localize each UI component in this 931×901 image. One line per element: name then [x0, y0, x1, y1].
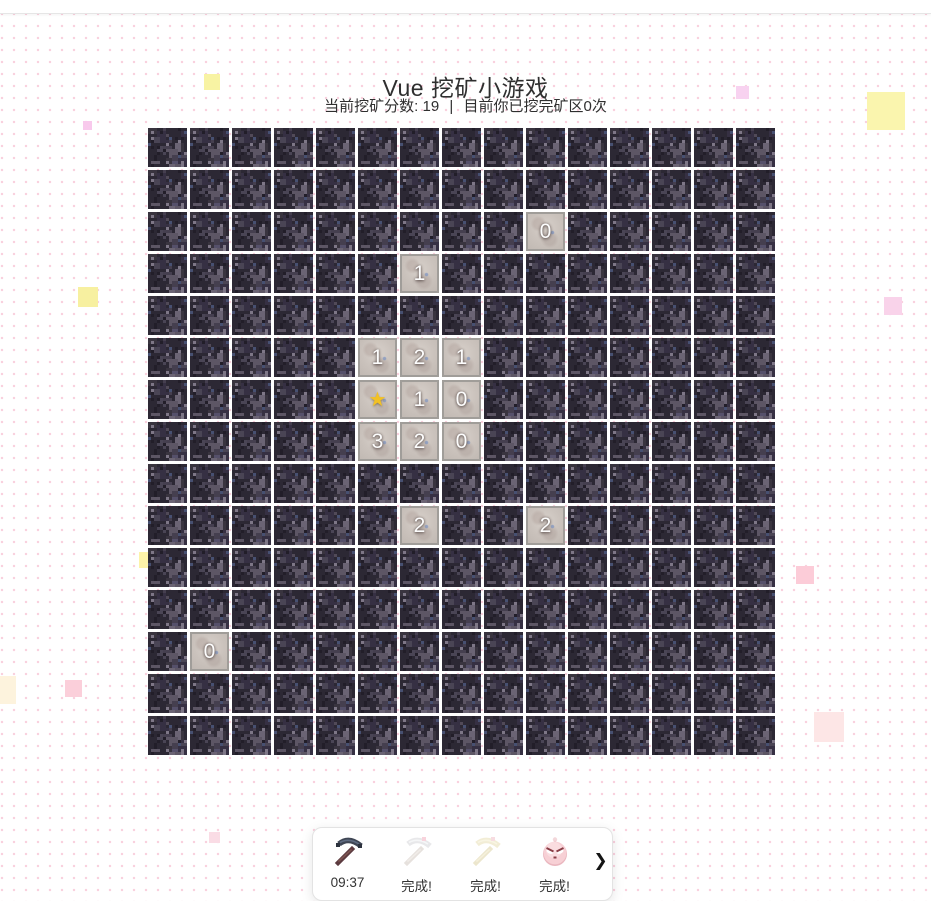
bedrock-tile-texture — [232, 254, 271, 293]
mine-cell[interactable] — [694, 296, 733, 335]
mine-cell[interactable] — [568, 590, 607, 629]
mine-cell[interactable] — [694, 632, 733, 671]
mine-cell[interactable] — [232, 632, 271, 671]
mine-cell[interactable] — [274, 506, 313, 545]
bedrock-tile-texture — [736, 380, 775, 419]
mine-cell[interactable] — [610, 506, 649, 545]
mine-cell[interactable] — [400, 170, 439, 209]
adjacent-count: 2 — [540, 515, 552, 536]
mine-cell[interactable] — [484, 212, 523, 251]
bedrock-tile-texture — [652, 128, 691, 167]
mine-cell[interactable] — [442, 464, 481, 503]
mine-cell[interactable] — [232, 380, 271, 419]
mine-cell[interactable] — [190, 212, 229, 251]
mine-cell[interactable] — [358, 674, 397, 713]
mine-cell[interactable] — [694, 212, 733, 251]
mine-cell[interactable] — [442, 632, 481, 671]
mine-cell[interactable] — [484, 422, 523, 461]
bedrock-tile-texture — [232, 422, 271, 461]
gold-pickaxe-icon — [470, 835, 502, 872]
bedrock-tile-texture — [316, 590, 355, 629]
mine-cell[interactable] — [442, 296, 481, 335]
mine-cell[interactable] — [316, 506, 355, 545]
mine-cell[interactable] — [400, 548, 439, 587]
mine-cell[interactable] — [274, 590, 313, 629]
adjacent-count: 2 — [414, 431, 426, 452]
mine-cell-revealed: 3 — [358, 422, 397, 461]
mine-cell[interactable] — [400, 590, 439, 629]
mine-cell[interactable] — [358, 254, 397, 293]
bedrock-tile-texture — [190, 464, 229, 503]
mine-cell[interactable] — [652, 632, 691, 671]
bedrock-tile-texture — [652, 254, 691, 293]
tool-slot-2[interactable]: 完成! — [382, 828, 451, 900]
mine-cell[interactable] — [442, 212, 481, 251]
mine-cell[interactable] — [190, 296, 229, 335]
pink-orb-icon — [539, 835, 571, 872]
mine-cell[interactable] — [736, 464, 775, 503]
bedrock-tile-texture — [568, 674, 607, 713]
bedrock-tile-texture — [232, 338, 271, 377]
mine-cell[interactable] — [484, 338, 523, 377]
mine-cell[interactable] — [358, 548, 397, 587]
mine-cell[interactable] — [400, 296, 439, 335]
mine-cell[interactable] — [400, 716, 439, 755]
mine-cell[interactable] — [526, 338, 565, 377]
mine-cell[interactable] — [274, 254, 313, 293]
mine-cell[interactable] — [400, 464, 439, 503]
mine-cell[interactable] — [274, 338, 313, 377]
mine-cell[interactable] — [484, 170, 523, 209]
mine-cell-revealed: 1 — [400, 254, 439, 293]
mine-cell[interactable] — [526, 422, 565, 461]
bedrock-tile-texture — [442, 128, 481, 167]
mine-cell[interactable] — [232, 674, 271, 713]
mine-cell[interactable] — [568, 212, 607, 251]
mine-cell[interactable] — [232, 506, 271, 545]
bedrock-tile-texture — [610, 380, 649, 419]
mine-cell[interactable] — [484, 380, 523, 419]
mine-cell[interactable] — [736, 548, 775, 587]
mine-cell[interactable] — [568, 338, 607, 377]
mine-cell[interactable] — [232, 296, 271, 335]
mine-cell[interactable] — [652, 464, 691, 503]
mine-cell[interactable] — [694, 716, 733, 755]
mine-cell[interactable] — [148, 506, 187, 545]
mine-cell[interactable] — [316, 632, 355, 671]
mine-cell[interactable] — [190, 464, 229, 503]
mine-cell[interactable] — [316, 254, 355, 293]
mine-cell[interactable] — [484, 632, 523, 671]
mine-cell[interactable] — [484, 464, 523, 503]
mine-cell[interactable] — [652, 590, 691, 629]
bedrock-tile-texture — [400, 170, 439, 209]
mine-cell[interactable] — [232, 170, 271, 209]
mine-cell[interactable] — [232, 464, 271, 503]
mine-cell[interactable] — [442, 548, 481, 587]
mine-cell[interactable] — [736, 380, 775, 419]
mine-cell[interactable] — [652, 548, 691, 587]
mine-cell[interactable] — [190, 590, 229, 629]
mine-cell[interactable] — [610, 254, 649, 293]
mine-cell[interactable] — [736, 632, 775, 671]
bedrock-tile-texture — [610, 170, 649, 209]
mine-cell[interactable] — [232, 128, 271, 167]
mine-cell[interactable] — [148, 338, 187, 377]
bedrock-tile-texture — [232, 128, 271, 167]
mine-cell[interactable] — [148, 296, 187, 335]
mine-cell[interactable] — [358, 590, 397, 629]
mine-cell[interactable] — [694, 464, 733, 503]
mine-cell[interactable] — [568, 296, 607, 335]
mine-cell[interactable] — [400, 632, 439, 671]
mine-cell[interactable] — [316, 170, 355, 209]
mine-cell[interactable] — [316, 296, 355, 335]
bedrock-tile-texture — [190, 422, 229, 461]
mine-cell[interactable] — [694, 170, 733, 209]
mine-cell[interactable] — [736, 674, 775, 713]
bedrock-tile-texture — [358, 128, 397, 167]
mine-cell[interactable] — [652, 716, 691, 755]
mine-cell[interactable] — [274, 212, 313, 251]
mine-cell[interactable] — [568, 548, 607, 587]
mine-cell[interactable] — [694, 674, 733, 713]
bedrock-tile-texture — [274, 212, 313, 251]
bedrock-tile-texture — [652, 296, 691, 335]
mine-cell[interactable] — [316, 674, 355, 713]
mine-cell[interactable] — [316, 212, 355, 251]
mine-cell[interactable] — [190, 254, 229, 293]
adjacent-count: 2 — [414, 347, 426, 368]
mine-cell[interactable] — [442, 506, 481, 545]
tool-slot-3[interactable]: 完成! — [451, 828, 520, 900]
mine-cell[interactable] — [736, 506, 775, 545]
mine-cell[interactable] — [568, 464, 607, 503]
bedrock-tile-texture — [484, 716, 523, 755]
bedrock-tile-texture — [526, 296, 565, 335]
mine-cell[interactable] — [736, 128, 775, 167]
mine-cell[interactable] — [694, 506, 733, 545]
mine-cell[interactable] — [442, 254, 481, 293]
mine-cell[interactable] — [484, 548, 523, 587]
mine-cell[interactable] — [484, 590, 523, 629]
bedrock-tile-texture — [442, 296, 481, 335]
mine-cell[interactable] — [358, 296, 397, 335]
mine-cell[interactable] — [232, 212, 271, 251]
mine-cell[interactable] — [400, 212, 439, 251]
mine-cell[interactable] — [568, 716, 607, 755]
bedrock-tile-texture — [484, 590, 523, 629]
bedrock-tile-texture — [736, 170, 775, 209]
mine-cell[interactable] — [148, 716, 187, 755]
bedrock-tile-texture — [190, 716, 229, 755]
mine-cell[interactable] — [484, 296, 523, 335]
mine-cell[interactable] — [652, 338, 691, 377]
mine-cell[interactable] — [316, 464, 355, 503]
mine-cell[interactable] — [652, 506, 691, 545]
mine-cell[interactable] — [232, 422, 271, 461]
status-divider: | — [449, 98, 453, 115]
mine-cell[interactable] — [568, 128, 607, 167]
mine-cell[interactable] — [610, 590, 649, 629]
bedrock-tile-texture — [736, 506, 775, 545]
mine-cell[interactable] — [568, 422, 607, 461]
adjacent-count: 1 — [414, 263, 426, 284]
mine-cell[interactable] — [148, 212, 187, 251]
mine-cell[interactable] — [148, 548, 187, 587]
mine-cell[interactable] — [358, 464, 397, 503]
mine-cell[interactable] — [148, 464, 187, 503]
mine-cell[interactable] — [568, 254, 607, 293]
mine-cell[interactable] — [316, 380, 355, 419]
mine-cell[interactable] — [568, 632, 607, 671]
mine-cell[interactable] — [148, 254, 187, 293]
bedrock-tile-texture — [484, 422, 523, 461]
bedrock-tile-texture — [568, 716, 607, 755]
mine-cell[interactable] — [610, 548, 649, 587]
mine-cell[interactable] — [274, 380, 313, 419]
mine-cell[interactable] — [442, 674, 481, 713]
mine-cell[interactable] — [694, 422, 733, 461]
netherite-pickaxe-icon — [332, 835, 364, 872]
mine-cell[interactable] — [190, 338, 229, 377]
mine-cell[interactable] — [274, 464, 313, 503]
mine-cell[interactable] — [610, 128, 649, 167]
mine-cell[interactable] — [148, 590, 187, 629]
mine-cell-revealed: 2 — [526, 506, 565, 545]
mine-cell[interactable] — [568, 506, 607, 545]
bedrock-tile-texture — [232, 674, 271, 713]
mine-cell[interactable] — [736, 422, 775, 461]
mine-cell[interactable] — [526, 128, 565, 167]
chevron-right-icon[interactable]: ❯ — [589, 828, 612, 900]
mine-cell[interactable] — [442, 170, 481, 209]
bedrock-tile-texture — [148, 464, 187, 503]
mine-cell[interactable] — [358, 170, 397, 209]
mine-cell[interactable] — [694, 590, 733, 629]
mine-cell[interactable] — [274, 548, 313, 587]
bedrock-tile-texture — [316, 212, 355, 251]
bedrock-tile-texture — [316, 674, 355, 713]
mine-cell[interactable] — [652, 674, 691, 713]
mine-cell[interactable] — [400, 128, 439, 167]
mine-cell[interactable] — [526, 380, 565, 419]
mine-cell[interactable] — [652, 170, 691, 209]
mine-cell[interactable] — [610, 464, 649, 503]
mine-cell[interactable] — [232, 590, 271, 629]
mine-cell[interactable] — [274, 674, 313, 713]
bedrock-tile-texture — [526, 590, 565, 629]
bedrock-tile-texture — [274, 506, 313, 545]
mine-cell[interactable] — [442, 128, 481, 167]
mine-cell[interactable] — [694, 128, 733, 167]
mine-cell[interactable] — [484, 506, 523, 545]
mine-cell[interactable] — [190, 674, 229, 713]
mine-cell[interactable] — [358, 212, 397, 251]
bedrock-tile-texture — [652, 716, 691, 755]
iron-pickaxe-icon — [401, 835, 433, 872]
mine-cell[interactable] — [442, 716, 481, 755]
mine-cell[interactable] — [610, 674, 649, 713]
mine-cell[interactable] — [610, 380, 649, 419]
mine-cell[interactable] — [526, 296, 565, 335]
mine-cell[interactable] — [736, 338, 775, 377]
mine-cell[interactable] — [610, 212, 649, 251]
bedrock-tile-texture — [316, 380, 355, 419]
mine-cell[interactable] — [358, 632, 397, 671]
mine-cell[interactable] — [232, 254, 271, 293]
mine-cell[interactable] — [484, 716, 523, 755]
mine-cell[interactable] — [232, 338, 271, 377]
mine-cell[interactable] — [148, 632, 187, 671]
mine-cell[interactable] — [736, 170, 775, 209]
bedrock-tile-texture — [400, 548, 439, 587]
mine-cell[interactable] — [526, 590, 565, 629]
mine-cell[interactable] — [568, 674, 607, 713]
bedrock-tile-texture — [694, 380, 733, 419]
mine-cell[interactable] — [232, 548, 271, 587]
mine-cell[interactable] — [190, 380, 229, 419]
bedrock-tile-texture — [610, 128, 649, 167]
bedrock-tile-texture — [148, 506, 187, 545]
bedrock-tile-texture — [652, 338, 691, 377]
bedrock-tile-texture — [274, 296, 313, 335]
tool-slot-4[interactable]: 完成! — [520, 828, 589, 900]
mine-cell[interactable] — [274, 296, 313, 335]
mine-cell[interactable] — [526, 632, 565, 671]
mine-cell[interactable] — [148, 128, 187, 167]
mine-cell[interactable] — [610, 170, 649, 209]
mine-cell[interactable] — [610, 422, 649, 461]
mine-cell[interactable] — [316, 590, 355, 629]
mine-cell[interactable] — [358, 716, 397, 755]
mine-cell[interactable] — [694, 380, 733, 419]
bedrock-tile-texture — [274, 170, 313, 209]
mine-cell[interactable] — [610, 296, 649, 335]
mine-cell[interactable] — [358, 128, 397, 167]
mine-cell[interactable] — [694, 338, 733, 377]
bedrock-tile-texture — [568, 338, 607, 377]
bedrock-tile-texture — [568, 422, 607, 461]
bedrock-tile-texture — [358, 674, 397, 713]
mine-cell[interactable] — [526, 170, 565, 209]
mine-cell[interactable] — [694, 254, 733, 293]
mine-cell[interactable] — [274, 422, 313, 461]
bedrock-tile-texture — [274, 338, 313, 377]
mine-cell[interactable] — [736, 296, 775, 335]
bedrock-tile-texture — [736, 590, 775, 629]
mine-cell[interactable] — [190, 716, 229, 755]
mine-cell[interactable] — [190, 548, 229, 587]
bedrock-tile-texture — [484, 338, 523, 377]
tool-slot-1[interactable]: 09:37 — [313, 828, 382, 900]
mine-cell[interactable] — [316, 716, 355, 755]
mine-cell[interactable] — [484, 674, 523, 713]
mine-cell[interactable] — [274, 170, 313, 209]
mine-cell[interactable] — [526, 674, 565, 713]
bedrock-tile-texture — [568, 632, 607, 671]
mine-cell[interactable] — [568, 380, 607, 419]
mine-cell[interactable] — [316, 338, 355, 377]
mine-cell[interactable] — [610, 632, 649, 671]
mine-cell[interactable] — [358, 506, 397, 545]
mine-cell[interactable] — [148, 674, 187, 713]
bedrock-tile-texture — [484, 548, 523, 587]
mine-cell[interactable] — [652, 380, 691, 419]
bedrock-tile-texture — [568, 254, 607, 293]
bedrock-tile-texture — [526, 464, 565, 503]
bedrock-tile-texture — [736, 212, 775, 251]
mine-cell[interactable] — [232, 716, 271, 755]
mine-cell[interactable] — [652, 422, 691, 461]
mine-cell[interactable] — [736, 212, 775, 251]
mine-cell[interactable] — [736, 254, 775, 293]
rounds-prefix: 目前你已挖完矿区 — [463, 98, 583, 115]
mine-cell[interactable] — [190, 170, 229, 209]
mine-cell[interactable] — [736, 716, 775, 755]
bedrock-tile-texture — [190, 506, 229, 545]
bedrock-tile-texture — [610, 464, 649, 503]
mine-cell[interactable] — [610, 338, 649, 377]
mine-cell[interactable] — [316, 422, 355, 461]
mine-cell[interactable] — [652, 296, 691, 335]
mine-cell[interactable] — [148, 380, 187, 419]
bedrock-tile-texture — [148, 674, 187, 713]
bedrock-tile-texture — [148, 296, 187, 335]
mine-cell[interactable] — [526, 464, 565, 503]
mine-cell[interactable] — [652, 212, 691, 251]
mine-cell[interactable] — [610, 716, 649, 755]
bedrock-tile-texture — [442, 212, 481, 251]
mine-cell[interactable] — [442, 590, 481, 629]
mine-cell[interactable] — [652, 254, 691, 293]
bedrock-tile-texture — [568, 380, 607, 419]
mine-cell[interactable] — [484, 128, 523, 167]
mine-cell[interactable] — [274, 632, 313, 671]
mine-cell[interactable] — [736, 590, 775, 629]
mine-cell[interactable] — [274, 128, 313, 167]
mine-cell[interactable] — [568, 170, 607, 209]
mine-cell[interactable] — [526, 548, 565, 587]
bedrock-tile-texture — [526, 422, 565, 461]
bedrock-tile-texture — [610, 674, 649, 713]
bedrock-tile-texture — [610, 632, 649, 671]
mine-cell[interactable] — [526, 716, 565, 755]
confetti-square — [65, 680, 82, 697]
mine-cell[interactable] — [190, 422, 229, 461]
bedrock-tile-texture — [232, 506, 271, 545]
bedrock-tile-texture — [442, 506, 481, 545]
bedrock-tile-texture — [736, 296, 775, 335]
mine-cell[interactable] — [316, 548, 355, 587]
mine-cell[interactable] — [316, 128, 355, 167]
mine-cell[interactable] — [400, 674, 439, 713]
mine-cell[interactable] — [190, 128, 229, 167]
mine-cell[interactable] — [148, 170, 187, 209]
mine-cell[interactable] — [484, 254, 523, 293]
mine-cell[interactable] — [694, 548, 733, 587]
mine-cell[interactable] — [526, 254, 565, 293]
mine-cell[interactable] — [652, 128, 691, 167]
mine-cell-revealed: 0 — [442, 422, 481, 461]
bedrock-tile-texture — [610, 506, 649, 545]
bedrock-tile-texture — [568, 212, 607, 251]
bedrock-tile-texture — [652, 590, 691, 629]
mine-cell[interactable] — [274, 716, 313, 755]
bedrock-tile-texture — [400, 128, 439, 167]
mine-cell[interactable] — [148, 422, 187, 461]
mine-cell[interactable] — [190, 506, 229, 545]
